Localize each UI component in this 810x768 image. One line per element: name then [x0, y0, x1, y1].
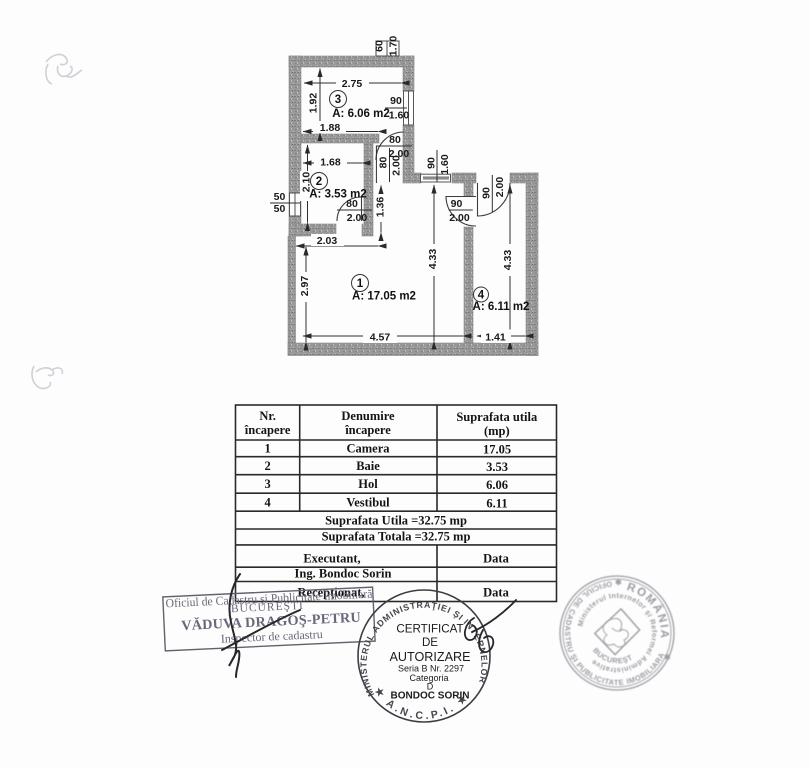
- svg-text:50: 50: [274, 203, 286, 215]
- svg-text:4.33: 4.33: [502, 250, 514, 271]
- svg-text:4.33: 4.33: [427, 249, 439, 270]
- svg-text:Suprafata utila: Suprafata utila: [456, 410, 538, 424]
- svg-text:Data: Data: [483, 552, 509, 566]
- svg-text:Seria B Nr. 2297: Seria B Nr. 2297: [398, 664, 464, 674]
- svg-text:încapere: încapere: [244, 423, 291, 437]
- svg-text:3: 3: [264, 477, 270, 491]
- svg-text:80: 80: [378, 157, 390, 169]
- svg-text:6.06: 6.06: [486, 478, 508, 492]
- svg-text:2: 2: [264, 459, 270, 473]
- svg-text:AUTORIZARE: AUTORIZARE: [390, 650, 471, 664]
- svg-text:Hol: Hol: [358, 477, 378, 491]
- svg-text:2.00: 2.00: [347, 212, 368, 224]
- svg-text:2.75: 2.75: [342, 78, 363, 90]
- svg-text:încapere: încapere: [344, 423, 391, 437]
- svg-text:✱: ✱: [615, 578, 622, 587]
- svg-text:CERTIFICAT: CERTIFICAT: [396, 623, 463, 636]
- svg-text:4: 4: [478, 290, 485, 302]
- svg-text:Camera: Camera: [346, 442, 390, 456]
- svg-text:(mp): (mp): [484, 424, 510, 438]
- svg-text:3: 3: [335, 94, 341, 106]
- svg-text:A: 3.53 m2: A: 3.53 m2: [309, 189, 367, 201]
- svg-text:2.00: 2.00: [449, 212, 470, 224]
- svg-text:Baie: Baie: [356, 459, 380, 473]
- svg-text:1.88: 1.88: [320, 122, 341, 134]
- svg-text:Data: Data: [483, 586, 509, 600]
- svg-text:Executant,: Executant,: [303, 552, 360, 566]
- svg-text:1.36: 1.36: [375, 197, 387, 218]
- svg-text:90: 90: [481, 187, 493, 199]
- svg-text:Nr.: Nr.: [259, 409, 276, 423]
- svg-text:17.05: 17.05: [483, 443, 511, 457]
- svg-text:50: 50: [274, 191, 286, 203]
- svg-text:80: 80: [389, 134, 401, 146]
- svg-text:60: 60: [374, 40, 386, 52]
- svg-text:2.00: 2.00: [494, 177, 506, 198]
- svg-text:1.60: 1.60: [389, 110, 410, 122]
- svg-text:4.57: 4.57: [370, 332, 391, 344]
- svg-text:2.97: 2.97: [299, 276, 311, 297]
- svg-text:1.60: 1.60: [439, 154, 451, 175]
- svg-text:Suprafata Totala =32.75 mp: Suprafata Totala =32.75 mp: [322, 530, 471, 544]
- svg-text:1: 1: [357, 278, 364, 290]
- svg-text:90: 90: [390, 95, 402, 107]
- svg-text:4: 4: [264, 496, 271, 510]
- svg-text:2: 2: [316, 176, 322, 188]
- svg-text:A: 17.05 m2: A: 17.05 m2: [352, 291, 416, 303]
- svg-text:1.92: 1.92: [308, 93, 320, 114]
- svg-text:A: 6.06 m2: A: 6.06 m2: [332, 108, 390, 120]
- svg-text:90: 90: [425, 157, 437, 169]
- svg-text:2.03: 2.03: [317, 235, 338, 247]
- svg-text:1.41: 1.41: [485, 332, 506, 344]
- svg-text:Vestibul: Vestibul: [346, 496, 390, 510]
- svg-text:Denumire: Denumire: [341, 409, 395, 423]
- svg-text:✱: ✱: [664, 653, 671, 662]
- svg-text:1.70: 1.70: [388, 36, 400, 57]
- svg-text:3.53: 3.53: [486, 460, 508, 474]
- svg-text:90: 90: [451, 198, 463, 210]
- svg-text:Ing. Bondoc Sorin: Ing. Bondoc Sorin: [295, 567, 392, 581]
- svg-text:1: 1: [264, 442, 270, 456]
- svg-text:DE: DE: [422, 636, 438, 649]
- svg-text:6.11: 6.11: [486, 497, 507, 511]
- svg-text:A: 6.11 m2: A: 6.11 m2: [473, 301, 530, 313]
- svg-text:2.00: 2.00: [391, 155, 403, 176]
- svg-text:Suprafata Utila =32.75 mp: Suprafata Utila =32.75 mp: [325, 514, 467, 528]
- svg-text:BONDOC SORIN: BONDOC SORIN: [391, 691, 470, 702]
- svg-text:1.68: 1.68: [320, 157, 341, 169]
